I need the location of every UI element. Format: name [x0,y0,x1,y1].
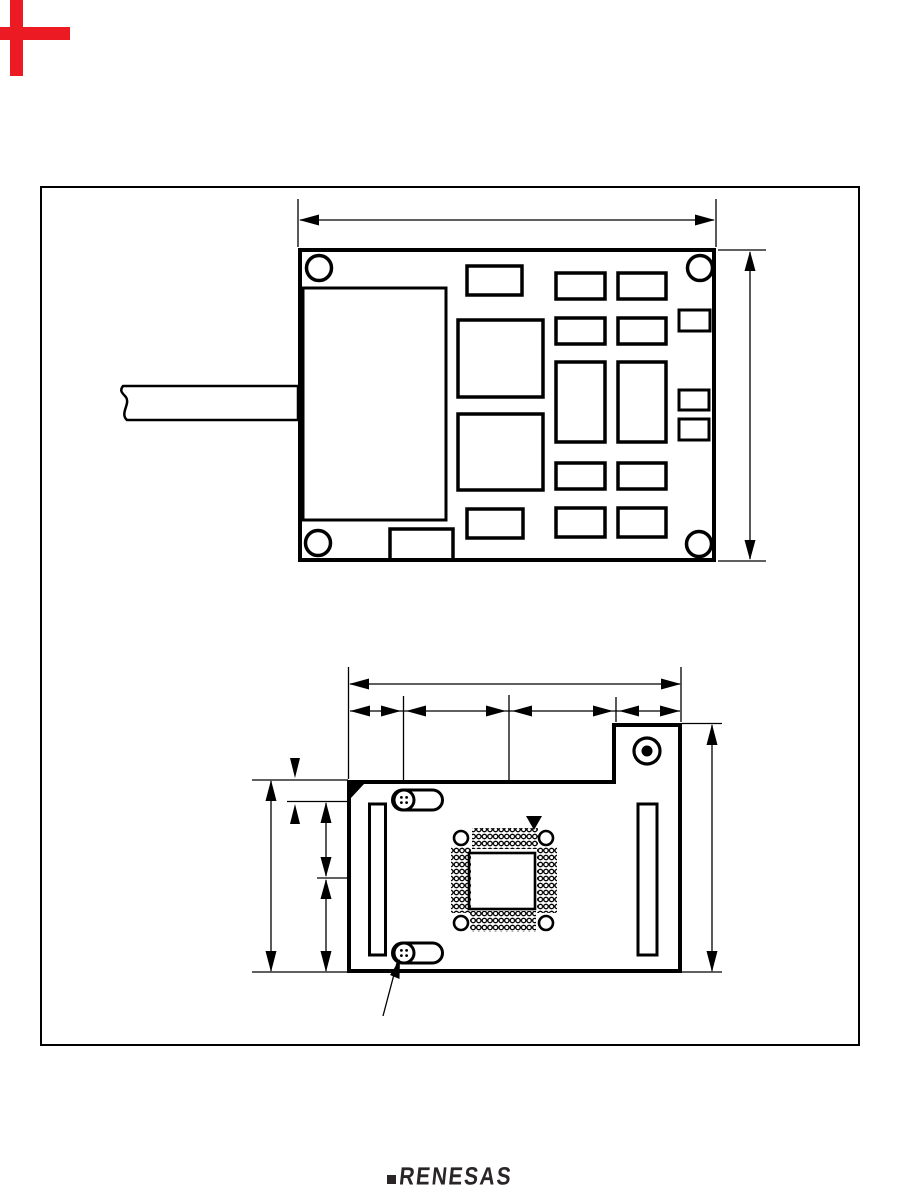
dimension-height-bottom-view [707,724,718,972]
renesas-logo: RENESAS [387,1163,514,1191]
dimension-left-inner [321,802,332,972]
dimension-width-top-view [298,199,716,247]
pcb-top-view [121,199,766,561]
dimension-height-top-view [718,250,766,561]
dimension-edge-offset [290,758,300,824]
dimension-left-outer [266,780,277,972]
logo-dot [387,1175,396,1184]
logo-text: RENESAS [398,1163,514,1191]
cable [121,386,298,420]
screw-slot-top [393,790,443,810]
screw-slot-bottom [393,943,443,963]
technical-drawing: RENESAS [0,0,907,1202]
document-page: RENESAS [0,0,907,1202]
pcb-bottom-view [252,667,722,1016]
dimension-overall-width-bottom-view [349,679,681,690]
dimension-segments-bottom-view [350,706,680,717]
